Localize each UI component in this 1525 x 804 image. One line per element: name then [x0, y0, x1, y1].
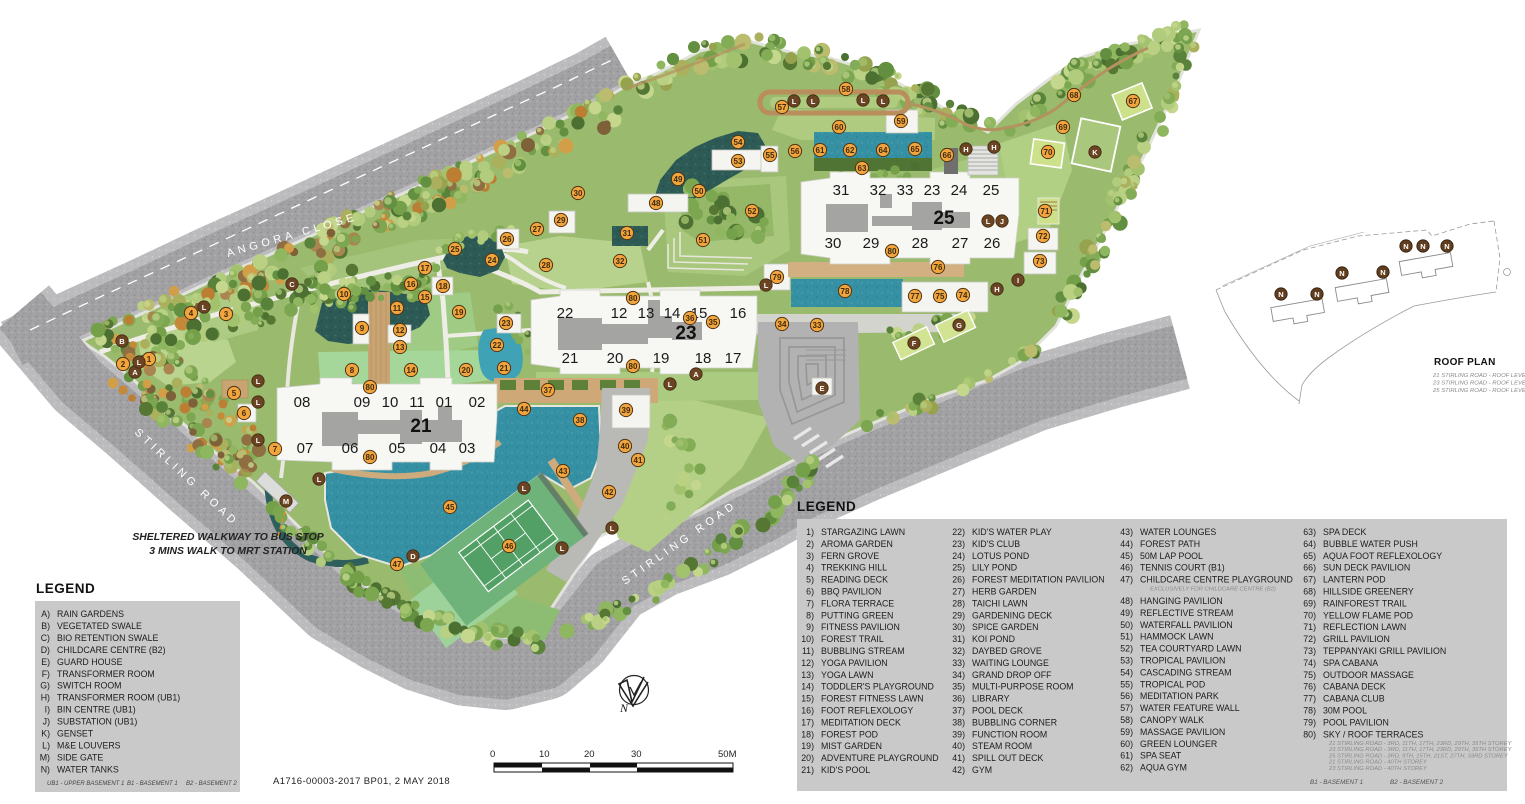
svg-text:72): 72) [1303, 634, 1316, 644]
svg-text:60): 60) [1120, 739, 1133, 749]
svg-text:17: 17 [421, 264, 430, 273]
svg-text:02: 02 [469, 394, 486, 411]
svg-text:35: 35 [709, 318, 718, 327]
svg-text:G): G) [40, 681, 50, 691]
svg-text:GYM: GYM [972, 765, 992, 775]
svg-text:A1716-00003-2017 BP01, 2 MAY 2: A1716-00003-2017 BP01, 2 MAY 2018 [273, 776, 450, 787]
svg-text:69): 69) [1303, 598, 1316, 608]
svg-text:41: 41 [634, 456, 643, 465]
svg-text:GREEN LOUNGER: GREEN LOUNGER [1140, 739, 1217, 749]
svg-text:56): 56) [1120, 691, 1133, 701]
svg-text:H): H) [41, 693, 50, 703]
svg-text:GENSET: GENSET [57, 729, 94, 739]
svg-text:A: A [693, 370, 699, 379]
svg-text:6): 6) [806, 587, 814, 597]
svg-text:9): 9) [806, 622, 814, 632]
svg-text:47): 47) [1120, 575, 1133, 585]
svg-text:RAINFOREST TRAIL: RAINFOREST TRAIL [1323, 598, 1407, 608]
svg-text:25: 25 [451, 245, 460, 254]
svg-text:15: 15 [421, 293, 430, 302]
svg-text:74: 74 [959, 291, 968, 300]
svg-text:18): 18) [801, 729, 814, 739]
svg-text:L: L [792, 97, 797, 106]
svg-text:71: 71 [1041, 207, 1050, 216]
svg-text:M&E LOUVERS: M&E LOUVERS [57, 741, 121, 751]
svg-text:20: 20 [584, 749, 595, 760]
svg-text:UB1 - UPPER BASEMENT 1: UB1 - UPPER BASEMENT 1 [47, 781, 124, 787]
svg-text:80: 80 [366, 383, 375, 392]
svg-text:58: 58 [842, 85, 851, 94]
svg-text:L: L [610, 524, 615, 533]
svg-text:B: B [119, 337, 125, 346]
svg-text:23 STIRLING ROAD - ROOF LEVEL: 23 STIRLING ROAD - ROOF LEVEL [1432, 381, 1525, 387]
svg-text:18: 18 [439, 282, 448, 291]
svg-text:FOREST PATH: FOREST PATH [1140, 539, 1200, 549]
svg-text:40: 40 [621, 442, 630, 451]
svg-text:79: 79 [773, 273, 782, 282]
svg-text:WATER FEATURE WALL: WATER FEATURE WALL [1140, 703, 1240, 713]
svg-text:BIN CENTRE (UB1): BIN CENTRE (UB1) [57, 705, 136, 715]
svg-text:37: 37 [544, 386, 553, 395]
svg-text:48): 48) [1120, 596, 1133, 606]
svg-text:21): 21) [801, 765, 814, 775]
svg-text:AQUA FOOT REFLEXOLOGY: AQUA FOOT REFLEXOLOGY [1323, 551, 1442, 561]
svg-text:N: N [1403, 242, 1408, 251]
svg-text:GARDENING DECK: GARDENING DECK [972, 610, 1052, 620]
svg-text:77: 77 [911, 292, 920, 301]
svg-text:66: 66 [943, 151, 952, 160]
svg-text:6: 6 [242, 409, 247, 418]
svg-text:4): 4) [806, 563, 814, 573]
svg-text:36): 36) [952, 694, 965, 704]
svg-text:VEGETATED SWALE: VEGETATED SWALE [57, 621, 142, 631]
svg-text:D): D) [41, 645, 50, 655]
svg-text:CABANA CLUB: CABANA CLUB [1323, 694, 1385, 704]
svg-text:WAITING LOUNGE: WAITING LOUNGE [972, 658, 1049, 668]
svg-text:24: 24 [488, 256, 497, 265]
svg-text:L: L [202, 303, 207, 312]
svg-text:52): 52) [1120, 644, 1133, 654]
svg-text:FOREST FITNESS LAWN: FOREST FITNESS LAWN [821, 694, 924, 704]
svg-text:08: 08 [294, 394, 311, 411]
svg-text:FLORA TERRACE: FLORA TERRACE [821, 598, 894, 608]
svg-text:G: G [956, 321, 962, 330]
svg-text:59): 59) [1120, 727, 1133, 737]
svg-text:62: 62 [846, 146, 855, 155]
svg-text:80): 80) [1303, 729, 1316, 739]
svg-text:READING DECK: READING DECK [821, 575, 888, 585]
svg-text:I: I [1017, 276, 1019, 285]
svg-text:75): 75) [1303, 670, 1316, 680]
svg-text:80: 80 [366, 453, 375, 462]
svg-text:FOOT REFLEXOLOGY: FOOT REFLEXOLOGY [821, 706, 913, 716]
svg-text:E: E [819, 384, 824, 393]
svg-text:28: 28 [542, 261, 551, 270]
svg-text:73): 73) [1303, 646, 1316, 656]
svg-text:56: 56 [791, 147, 800, 156]
svg-text:15): 15) [801, 694, 814, 704]
svg-text:EXCLUSIVELY FOR CHILDCARE CENT: EXCLUSIVELY FOR CHILDCARE CENTRE (B2) [1150, 587, 1276, 593]
svg-text:27: 27 [952, 235, 969, 252]
svg-text:30M POOL: 30M POOL [1323, 706, 1367, 716]
svg-text:SPA DECK: SPA DECK [1323, 527, 1366, 537]
svg-text:SIDE GATE: SIDE GATE [57, 752, 103, 762]
svg-text:F: F [912, 339, 917, 348]
svg-text:L: L [986, 217, 991, 226]
svg-text:69: 69 [1059, 123, 1068, 132]
svg-text:31: 31 [833, 182, 850, 199]
svg-text:TODDLER'S PLAYGROUND: TODDLER'S PLAYGROUND [821, 682, 934, 692]
svg-text:BUBBLING STREAM: BUBBLING STREAM [821, 646, 905, 656]
svg-text:WATER LOUNGES: WATER LOUNGES [1140, 527, 1216, 537]
svg-text:46: 46 [505, 542, 514, 551]
svg-text:MEDITATION PARK: MEDITATION PARK [1140, 691, 1219, 701]
svg-text:76: 76 [934, 263, 943, 272]
svg-text:TROPICAL PAVILION: TROPICAL PAVILION [1140, 656, 1225, 666]
svg-text:42: 42 [605, 488, 614, 497]
svg-text:HERB GARDEN: HERB GARDEN [972, 587, 1037, 597]
svg-text:65): 65) [1303, 551, 1316, 561]
svg-text:16): 16) [801, 706, 814, 716]
svg-text:25 STIRLING ROAD - ROOF LEVEL: 25 STIRLING ROAD - ROOF LEVEL [1432, 388, 1525, 394]
svg-text:29): 29) [952, 610, 965, 620]
svg-text:64: 64 [879, 146, 888, 155]
svg-text:N: N [1314, 290, 1319, 299]
svg-text:01: 01 [436, 394, 453, 411]
svg-text:67: 67 [1129, 97, 1138, 106]
svg-text:73: 73 [1036, 257, 1045, 266]
svg-text:22): 22) [952, 527, 965, 537]
svg-text:M): M) [40, 752, 50, 762]
svg-text:64): 64) [1303, 539, 1316, 549]
svg-text:CABANA DECK: CABANA DECK [1323, 682, 1386, 692]
svg-text:H: H [991, 143, 996, 152]
svg-text:1): 1) [806, 527, 814, 537]
svg-text:52: 52 [748, 207, 757, 216]
svg-text:29: 29 [557, 216, 566, 225]
svg-text:WATER TANKS: WATER TANKS [57, 764, 119, 774]
svg-text:MULTI-PURPOSE ROOM: MULTI-PURPOSE ROOM [972, 682, 1074, 692]
svg-text:05: 05 [389, 440, 406, 457]
svg-text:FOREST TRAIL: FOREST TRAIL [821, 634, 884, 644]
svg-text:YOGA LAWN: YOGA LAWN [821, 670, 873, 680]
svg-text:TREKKING HILL: TREKKING HILL [821, 563, 887, 573]
svg-text:3): 3) [806, 551, 814, 561]
svg-text:14: 14 [407, 366, 416, 375]
svg-text:54): 54) [1120, 667, 1133, 677]
svg-text:59: 59 [897, 117, 906, 126]
svg-text:67): 67) [1303, 575, 1316, 585]
svg-text:70: 70 [1044, 148, 1053, 157]
svg-text:53): 53) [1120, 656, 1133, 666]
svg-text:H: H [963, 145, 968, 154]
svg-text:13: 13 [638, 305, 655, 322]
svg-text:J: J [1000, 217, 1004, 226]
svg-text:J): J) [43, 717, 50, 727]
svg-text:51: 51 [699, 236, 708, 245]
svg-text:KID'S CLUB: KID'S CLUB [972, 539, 1020, 549]
svg-text:21 STIRLING ROAD - 3RD, 11TH,: 21 STIRLING ROAD - 3RD, 11TH, 17TH, 23RD… [1328, 741, 1513, 747]
svg-text:63: 63 [858, 164, 867, 173]
svg-text:26): 26) [952, 575, 965, 585]
svg-text:FERN GROVE: FERN GROVE [821, 551, 879, 561]
svg-text:23): 23) [952, 539, 965, 549]
svg-text:N: N [1339, 269, 1344, 278]
svg-text:KOI POND: KOI POND [972, 634, 1015, 644]
svg-text:31: 31 [623, 229, 632, 238]
svg-text:55: 55 [766, 151, 775, 160]
svg-text:N: N [1444, 242, 1449, 251]
svg-text:E): E) [41, 657, 50, 667]
svg-text:32: 32 [616, 257, 625, 266]
svg-text:24): 24) [952, 551, 965, 561]
svg-text:30: 30 [825, 235, 842, 252]
svg-text:44: 44 [520, 405, 529, 414]
svg-text:03: 03 [459, 440, 476, 457]
svg-text:MASSAGE PAVILION: MASSAGE PAVILION [1140, 727, 1225, 737]
svg-text:25: 25 [983, 182, 1000, 199]
svg-text:CANOPY WALK: CANOPY WALK [1140, 715, 1204, 725]
svg-text:57): 57) [1120, 703, 1133, 713]
svg-text:30: 30 [574, 189, 583, 198]
svg-text:CHILDCARE CENTRE PLAYGROUND: CHILDCARE CENTRE PLAYGROUND [1140, 575, 1293, 585]
svg-text:54: 54 [734, 138, 743, 147]
svg-text:N: N [1420, 242, 1425, 251]
svg-text:B2 - BASEMENT 2: B2 - BASEMENT 2 [1390, 779, 1444, 786]
svg-text:45: 45 [446, 503, 455, 512]
svg-text:48: 48 [652, 199, 661, 208]
svg-text:C: C [289, 280, 295, 289]
svg-text:9: 9 [360, 324, 365, 333]
svg-text:40): 40) [952, 741, 965, 751]
svg-text:80: 80 [629, 294, 638, 303]
svg-text:BBQ PAVILION: BBQ PAVILION [821, 587, 881, 597]
svg-text:21: 21 [562, 350, 579, 367]
svg-text:N: N [1278, 290, 1283, 299]
svg-text:TEA COURTYARD LAWN: TEA COURTYARD LAWN [1140, 644, 1242, 654]
svg-text:17): 17) [801, 717, 814, 727]
svg-text:1: 1 [147, 355, 152, 364]
svg-text:LEGEND: LEGEND [797, 499, 856, 514]
svg-text:F): F) [42, 669, 50, 679]
svg-text:33: 33 [897, 182, 914, 199]
svg-text:7: 7 [273, 445, 278, 454]
svg-text:25: 25 [933, 208, 955, 229]
svg-text:18: 18 [695, 350, 712, 367]
svg-text:26: 26 [503, 235, 512, 244]
svg-text:75: 75 [936, 292, 945, 301]
svg-text:19: 19 [653, 350, 670, 367]
svg-text:LEGEND: LEGEND [36, 581, 95, 596]
svg-text:21: 21 [410, 416, 432, 437]
svg-text:32): 32) [952, 646, 965, 656]
svg-text:80: 80 [629, 362, 638, 371]
svg-text:16: 16 [730, 305, 747, 322]
svg-text:34): 34) [952, 670, 965, 680]
svg-text:H: H [994, 285, 999, 294]
svg-text:12: 12 [396, 326, 405, 335]
svg-text:27): 27) [952, 587, 965, 597]
svg-text:TRANSFORMER ROOM: TRANSFORMER ROOM [57, 669, 155, 679]
svg-text:L: L [317, 475, 322, 484]
svg-text:KID'S POOL: KID'S POOL [821, 765, 870, 775]
svg-text:C): C) [41, 633, 50, 643]
svg-text:SPA CABANA: SPA CABANA [1323, 658, 1378, 668]
svg-text:AROMA GARDEN: AROMA GARDEN [821, 539, 893, 549]
svg-text:49): 49) [1120, 608, 1133, 618]
svg-text:42): 42) [952, 765, 965, 775]
svg-text:25 STIRLING ROAD - 3RD, 9TH, 1: 25 STIRLING ROAD - 3RD, 9TH, 15TH, 21ST,… [1328, 753, 1509, 759]
svg-text:58): 58) [1120, 715, 1133, 725]
svg-text:WATERFALL PAVILION: WATERFALL PAVILION [1140, 620, 1233, 630]
svg-text:38): 38) [952, 717, 965, 727]
svg-text:26: 26 [984, 235, 1001, 252]
svg-text:12: 12 [611, 305, 628, 322]
svg-text:3 MINS WALK TO MRT STATION: 3 MINS WALK TO MRT STATION [149, 546, 307, 557]
svg-text:TEPPANYAKI GRILL PAVILION: TEPPANYAKI GRILL PAVILION [1323, 646, 1446, 656]
svg-text:38: 38 [576, 416, 585, 425]
svg-text:4: 4 [189, 309, 194, 318]
svg-text:19): 19) [801, 741, 814, 751]
svg-text:76): 76) [1303, 682, 1316, 692]
svg-text:33: 33 [813, 321, 822, 330]
svg-text:AQUA GYM: AQUA GYM [1140, 763, 1187, 773]
svg-text:FOREST POD: FOREST POD [821, 729, 878, 739]
svg-text:B): B) [41, 621, 50, 631]
svg-text:35): 35) [952, 682, 965, 692]
svg-text:21 STIRLING ROAD - 40TH STOREY: 21 STIRLING ROAD - 40TH STOREY [1328, 760, 1428, 766]
svg-text:23 STIRLING ROAD - 40TH STOREY: 23 STIRLING ROAD - 40TH STOREY [1328, 766, 1428, 772]
svg-text:MIST GARDEN: MIST GARDEN [821, 741, 882, 751]
svg-text:10: 10 [382, 394, 399, 411]
svg-text:30): 30) [952, 622, 965, 632]
svg-text:ROOF PLAN: ROOF PLAN [1434, 357, 1496, 368]
svg-text:63): 63) [1303, 527, 1316, 537]
svg-text:KID'S WATER PLAY: KID'S WATER PLAY [972, 527, 1052, 537]
svg-text:ADVENTURE PLAYGROUND: ADVENTURE PLAYGROUND [821, 753, 939, 763]
svg-text:GUARD HOUSE: GUARD HOUSE [57, 657, 123, 667]
svg-text:72: 72 [1039, 232, 1048, 241]
svg-text:11): 11) [802, 646, 814, 656]
svg-text:PUTTING GREEN: PUTTING GREEN [821, 610, 893, 620]
svg-text:79): 79) [1303, 717, 1316, 727]
svg-text:FITNESS PAVILION: FITNESS PAVILION [821, 622, 900, 632]
svg-text:14): 14) [801, 682, 814, 692]
svg-text:27: 27 [533, 225, 542, 234]
svg-text:5): 5) [806, 575, 814, 585]
svg-text:N: N [619, 701, 629, 715]
svg-text:A): A) [41, 609, 50, 619]
svg-text:L): L) [42, 741, 50, 751]
svg-text:TENNIS COURT (B1): TENNIS COURT (B1) [1140, 563, 1225, 573]
svg-text:OUTDOOR MASSAGE: OUTDOOR MASSAGE [1323, 670, 1414, 680]
svg-text:71): 71) [1303, 622, 1316, 632]
svg-text:BUBBLING CORNER: BUBBLING CORNER [972, 717, 1057, 727]
svg-text:YOGA PAVILION: YOGA PAVILION [821, 658, 888, 668]
svg-text:L: L [764, 281, 769, 290]
svg-text:10: 10 [539, 749, 550, 760]
svg-text:SHELTERED WALKWAY TO BUS STOP: SHELTERED WALKWAY TO BUS STOP [132, 532, 323, 543]
svg-text:B1 - BASEMENT 1: B1 - BASEMENT 1 [127, 781, 178, 787]
svg-text:50M: 50M [718, 749, 737, 760]
svg-text:SPICE GARDEN: SPICE GARDEN [972, 622, 1038, 632]
svg-text:23: 23 [675, 323, 696, 344]
svg-text:LOTUS POND: LOTUS POND [972, 551, 1029, 561]
svg-text:L: L [137, 358, 142, 367]
svg-text:N): N) [41, 764, 50, 774]
svg-text:13): 13) [801, 670, 814, 680]
svg-text:28: 28 [912, 235, 929, 252]
svg-text:SKY / ROOF TERRACES: SKY / ROOF TERRACES [1323, 729, 1424, 739]
svg-text:11: 11 [409, 394, 425, 411]
svg-text:37): 37) [952, 706, 965, 716]
svg-text:78: 78 [841, 287, 850, 296]
svg-text:25): 25) [952, 563, 965, 573]
svg-text:L: L [560, 544, 565, 553]
svg-text:STARGAZING LAWN: STARGAZING LAWN [821, 527, 905, 537]
svg-text:65: 65 [911, 145, 920, 154]
svg-text:TRANSFORMER ROOM (UB1): TRANSFORMER ROOM (UB1) [57, 693, 180, 703]
svg-text:CASCADING STREAM: CASCADING STREAM [1140, 667, 1231, 677]
svg-text:06: 06 [342, 440, 359, 457]
svg-text:23 STIRLING ROAD - 3RD, 11TH,: 23 STIRLING ROAD - 3RD, 11TH, 17TH, 23RD… [1328, 747, 1513, 753]
svg-text:CHILDCARE CENTRE (B2): CHILDCARE CENTRE (B2) [57, 645, 166, 655]
svg-text:30: 30 [631, 749, 642, 760]
svg-text:LIBRARY: LIBRARY [972, 694, 1010, 704]
svg-text:80: 80 [888, 247, 897, 256]
svg-text:49: 49 [674, 175, 683, 184]
svg-text:10): 10) [801, 634, 814, 644]
svg-text:21: 21 [500, 364, 509, 373]
svg-text:36: 36 [686, 314, 695, 323]
svg-text:20: 20 [607, 350, 624, 367]
svg-text:77): 77) [1303, 694, 1316, 704]
svg-text:74): 74) [1303, 658, 1316, 668]
svg-text:22: 22 [493, 341, 502, 350]
svg-text:16: 16 [407, 280, 416, 289]
svg-text:10: 10 [340, 290, 349, 299]
svg-text:29: 29 [863, 235, 880, 252]
svg-text:DAYBED GROVE: DAYBED GROVE [972, 646, 1042, 656]
svg-text:53: 53 [734, 157, 743, 166]
svg-text:B2 - BASEMENT 2: B2 - BASEMENT 2 [186, 781, 237, 787]
svg-text:17: 17 [725, 350, 742, 367]
svg-text:I): I) [45, 705, 50, 715]
svg-text:21 STIRLING ROAD - ROOF LEVEL: 21 STIRLING ROAD - ROOF LEVEL [1432, 373, 1525, 379]
svg-text:3: 3 [224, 310, 229, 319]
svg-text:M: M [283, 497, 289, 506]
svg-text:REFLECTION LAWN: REFLECTION LAWN [1323, 622, 1406, 632]
svg-text:SPA SEAT: SPA SEAT [1140, 751, 1182, 761]
svg-text:23: 23 [502, 319, 511, 328]
svg-text:2: 2 [121, 360, 126, 369]
svg-text:0: 0 [490, 749, 495, 760]
svg-text:LILY POND: LILY POND [972, 563, 1017, 573]
svg-text:POOL DECK: POOL DECK [972, 706, 1023, 716]
svg-text:SUN DECK PAVILION: SUN DECK PAVILION [1323, 563, 1410, 573]
svg-text:K: K [1092, 148, 1098, 157]
svg-text:34: 34 [778, 320, 787, 329]
svg-text:68: 68 [1070, 91, 1079, 100]
svg-text:55): 55) [1120, 679, 1133, 689]
svg-text:50: 50 [695, 187, 704, 196]
svg-text:N: N [1380, 268, 1385, 277]
svg-text:78): 78) [1303, 706, 1316, 716]
svg-text:66): 66) [1303, 563, 1316, 573]
svg-text:B1 - BASEMENT 1: B1 - BASEMENT 1 [1310, 779, 1363, 786]
svg-text:L: L [256, 436, 261, 445]
svg-text:HAMMOCK LAWN: HAMMOCK LAWN [1140, 632, 1213, 642]
